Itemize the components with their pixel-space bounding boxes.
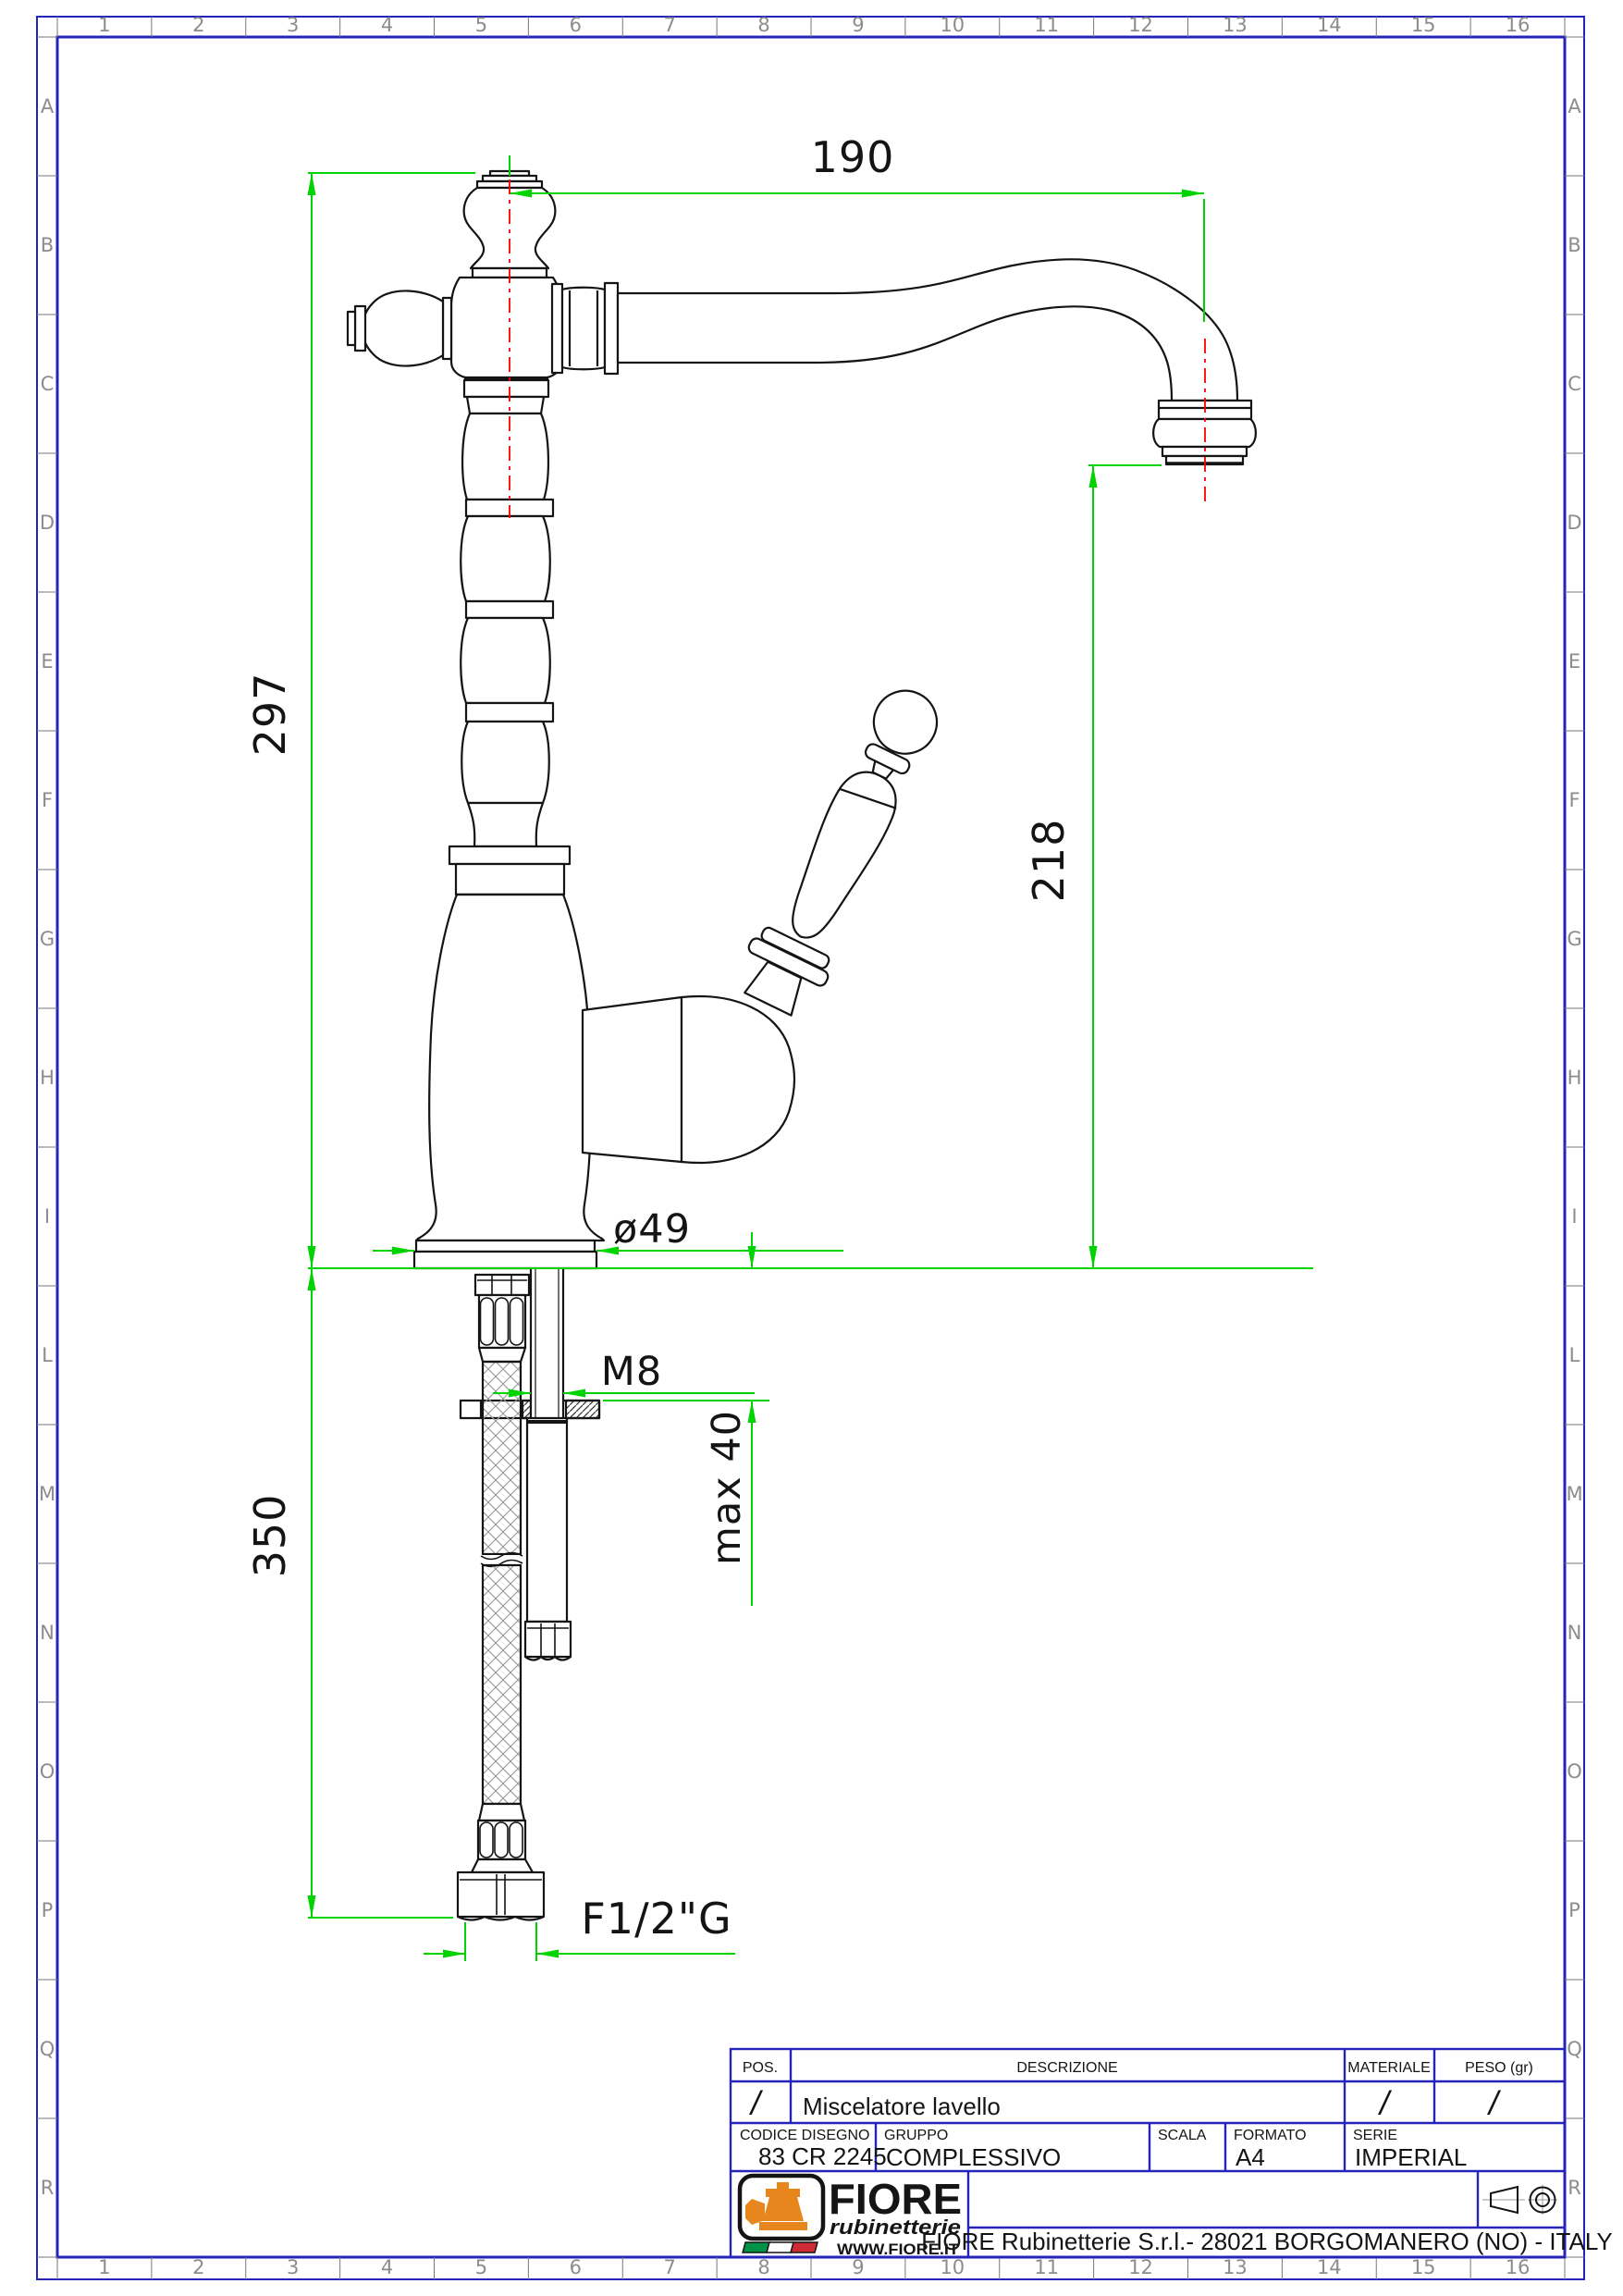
ruler-row-label: B [41,234,54,256]
tap-icon [745,2182,807,2230]
dim-label-diameter: ø49 [613,1206,691,1253]
ruler-column-label: 7 [664,14,676,36]
logo: FIORE rubinetterie WWW.FIORE.IT [740,2175,962,2258]
codice-header: CODICE DISEGNO [740,2128,869,2143]
ruler-row-label: G [1567,928,1581,950]
mounting-stud [525,1268,571,1660]
ruler-row-label: A [41,95,55,117]
ruler-row-label: O [1567,1760,1582,1783]
dim-label-max40: max 40 [704,1410,750,1565]
ruler-row-label: E [1568,650,1580,673]
ruler-column-label: 16 [1506,2256,1531,2278]
dim-label-218: 218 [1024,819,1074,903]
logo-website: WWW.FIORE.IT [837,2240,960,2258]
ruler-row-label: I [44,1205,50,1228]
ruler-column-label: 11 [1034,2256,1059,2278]
ruler-row-label: R [1568,2177,1581,2199]
spout [618,259,1237,401]
ruler-column-label: 4 [381,2256,393,2278]
ruler-column-label: 3 [287,2256,299,2278]
dim-label-m8: M8 [601,1349,662,1395]
company-line: FIORE Rubinetterie S.r.l.- 28021 BORGOMA… [921,2228,1612,2255]
ruler-row-label: M [39,1483,55,1505]
ruler-row-label: I [1571,1205,1577,1228]
ruler-row-label: N [40,1622,55,1644]
ruler-column-label: 14 [1317,2256,1342,2278]
ruler-row-label: C [41,373,55,395]
ruler-column-label: 3 [287,14,299,36]
base-flange [414,1241,596,1268]
ruler-column-label: 7 [664,2256,676,2278]
ruler-row-label: B [1568,234,1580,256]
ruler-column-label: 9 [852,14,864,36]
ruler-row-label: Q [1567,2038,1582,2060]
drawing-sheet: 12345678910111213141516 1234567891011121… [0,0,1623,2296]
peso-value: / [1486,2084,1502,2122]
ruler-row-label: P [42,1899,54,1921]
ruler-row-label: C [1568,373,1581,395]
ruler-column-label: 16 [1506,14,1531,36]
ruler-row-label: L [42,1344,53,1366]
ruler-column-label: 2 [192,14,204,36]
ruler-row-label: A [1568,95,1581,117]
dim-label-297: 297 [245,673,295,757]
ruler-left: ABCDEFGHILMNOPQR [37,37,57,2257]
ruler-column-label: 8 [757,14,769,36]
materiale-value: / [1377,2084,1393,2122]
codice-value: 83 CR 2245 [758,2142,887,2170]
faucet-drawing [348,171,1256,1920]
ruler-row-label: G [40,928,55,950]
ruler-row-label: Q [40,2038,55,2060]
ruler-column-label: 5 [475,14,487,36]
ruler-column-label: 12 [1128,14,1153,36]
ruler-row-label: H [40,1067,55,1089]
ruler-right: ABCDEFGHILMNOPQR [1565,37,1584,2257]
serie-value: IMPERIAL [1355,2143,1467,2171]
ruler-column-label: 10 [940,2256,965,2278]
ruler-row-label: E [41,650,53,673]
materiale-header: MATERIALE [1347,2060,1431,2076]
ruler-row-label: H [1568,1067,1582,1089]
ruler-column-label: 4 [381,14,393,36]
ruler-column-label: 13 [1223,14,1248,36]
lower-body [416,895,604,1241]
left-bulb [348,290,451,365]
ruler-column-label: 6 [570,14,582,36]
ruler-bottom: 12345678910111213141516 [57,2256,1565,2279]
ruler-column-label: 8 [757,2256,769,2278]
pos-value: / [748,2084,764,2122]
ruler-row-label: L [1569,1344,1580,1366]
ruler-row-label: R [41,2177,55,2199]
italian-flag-icon [743,2242,818,2253]
ruler-column-label: 2 [192,2256,204,2278]
ruler-row-label: F [1568,789,1580,811]
dim-label-190: 190 [811,132,895,182]
gruppo-header: GRUPPO [884,2128,948,2143]
formato-header: FORMATO [1234,2128,1307,2143]
dim-label-350: 350 [245,1494,295,1578]
ruler-column-label: 11 [1034,14,1059,36]
ruler-column-label: 1 [98,14,110,36]
ruler-column-label: 10 [940,14,965,36]
logo-subtitle: rubinetterie [830,2216,961,2239]
dim-label-hose-thread: F1/2"G [581,1894,732,1944]
ruler-row-label: F [42,789,53,811]
ruler-row-label: D [1567,512,1581,534]
formato-value: A4 [1236,2143,1265,2171]
pos-header: POS. [743,2060,778,2076]
projection-symbol-icon [1482,2185,1557,2215]
descrizione-value: Miscelatore lavello [803,2092,1001,2120]
serie-header: SERIE [1353,2128,1397,2143]
ruler-column-label: 1 [98,2256,110,2278]
ruler-row-label: P [1568,1899,1580,1921]
ruler-column-label: 13 [1223,2256,1248,2278]
ruler-column-label: 6 [570,2256,582,2278]
ruler-column-label: 15 [1411,14,1436,36]
ruler-row-label: N [1568,1622,1582,1644]
ruler-column-label: 15 [1411,2256,1436,2278]
handle-boss [583,996,794,1163]
valve-body [451,278,561,379]
ruler-column-label: 12 [1128,2256,1153,2278]
ruler-column-label: 5 [475,2256,487,2278]
ruler-column-label: 9 [852,2256,864,2278]
descrizione-header: DESCRIZIONE [1016,2060,1117,2076]
handle-lever [730,675,957,1023]
ruler-row-label: D [40,512,55,534]
drawing-canvas: 12345678910111213141516 1234567891011121… [0,0,1623,2296]
spout-connection [552,283,618,374]
peso-header: PESO (gr) [1465,2060,1533,2076]
ruler-row-label: O [40,1760,55,1783]
ruler-row-label: M [1566,1483,1582,1505]
ruler-column-label: 14 [1317,14,1342,36]
gruppo-value: COMPLESSIVO [886,2143,1061,2171]
scala-header: SCALA [1158,2128,1207,2143]
